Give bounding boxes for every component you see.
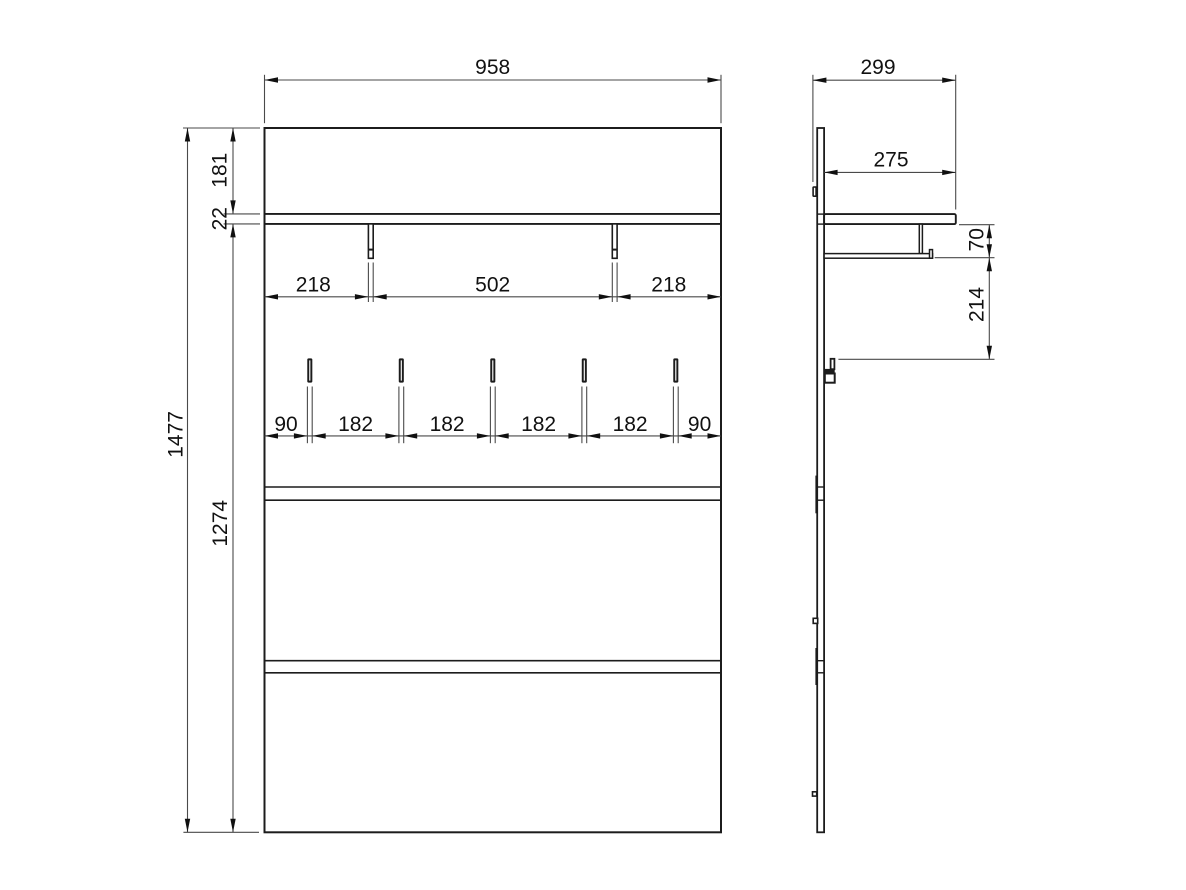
svg-text:299: 299 [860,56,895,79]
svg-text:502: 502 [475,273,510,296]
svg-text:275: 275 [873,149,908,172]
svg-text:182: 182 [338,413,373,436]
svg-text:182: 182 [613,413,648,436]
svg-text:90: 90 [274,413,297,436]
svg-text:22: 22 [209,207,232,230]
svg-text:218: 218 [651,273,686,296]
svg-text:181: 181 [209,153,232,188]
svg-text:182: 182 [430,413,465,436]
svg-text:958: 958 [475,56,510,79]
svg-text:214: 214 [966,287,989,322]
svg-text:90: 90 [688,413,711,436]
svg-text:182: 182 [521,413,556,436]
svg-text:70: 70 [965,228,988,251]
svg-text:1274: 1274 [209,500,232,547]
svg-text:1477: 1477 [165,411,188,458]
svg-text:218: 218 [296,273,331,296]
